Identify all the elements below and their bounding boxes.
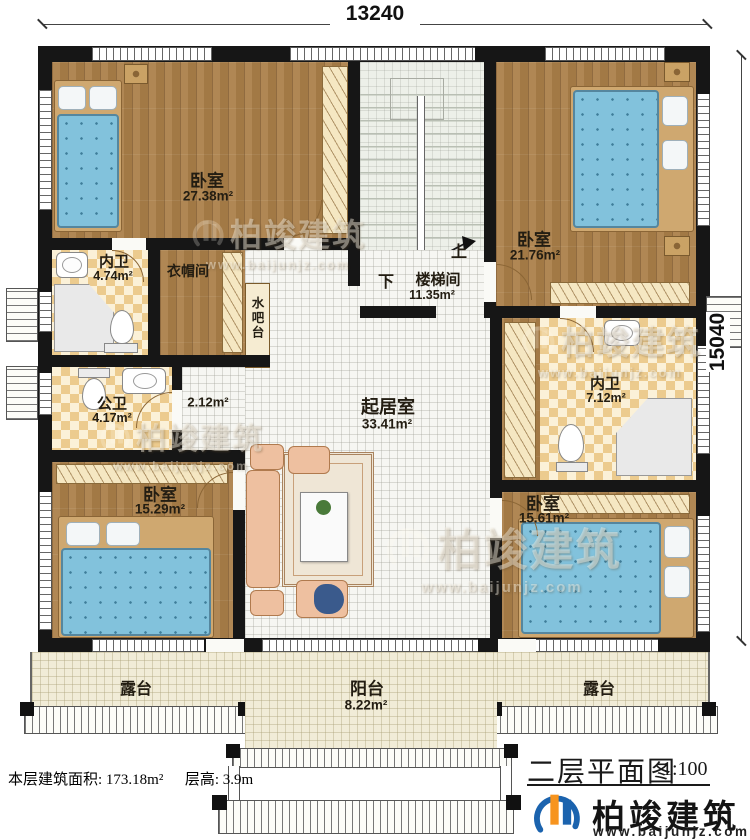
ac-platform bbox=[6, 288, 38, 342]
terrace-door-opening bbox=[206, 639, 244, 652]
wall-segment bbox=[52, 450, 245, 462]
door-opening bbox=[560, 306, 596, 318]
sofa bbox=[246, 470, 280, 588]
brand-logo-icon bbox=[528, 788, 586, 838]
terrace-left-railing bbox=[24, 706, 250, 734]
plant bbox=[316, 500, 331, 515]
bath-right-area: 7.12m² bbox=[586, 391, 626, 405]
ac-platform bbox=[6, 366, 38, 420]
plan-scale: 1:100 bbox=[662, 758, 708, 781]
washbasin bbox=[122, 368, 166, 394]
stairwell-label: 楼梯间 bbox=[415, 269, 460, 290]
nightstand bbox=[664, 62, 690, 82]
window bbox=[290, 47, 475, 61]
bedroom-br-closet bbox=[504, 322, 536, 478]
bath-public-area: 4.17m² bbox=[92, 411, 132, 425]
toilet bbox=[110, 310, 134, 344]
cloakroom-label: 衣帽间 bbox=[167, 261, 209, 281]
window bbox=[532, 639, 658, 652]
door-opening bbox=[484, 262, 496, 302]
hallway-area: 2.12m² bbox=[187, 395, 228, 410]
wall-segment bbox=[496, 306, 696, 318]
window bbox=[39, 492, 52, 630]
window bbox=[697, 94, 710, 226]
wall-segment bbox=[360, 306, 436, 318]
floor-area-text: 本层建筑面积: 173.18m² bbox=[8, 772, 163, 788]
sofa-seat bbox=[288, 446, 330, 474]
basin-bowl bbox=[133, 373, 157, 389]
door-opening bbox=[172, 390, 182, 430]
basin-bowl bbox=[62, 257, 82, 273]
bedroom-tl-wardrobe bbox=[322, 66, 348, 234]
door-opening bbox=[490, 498, 502, 538]
wall-segment bbox=[348, 62, 360, 250]
dimension-top-value: 13240 bbox=[330, 2, 420, 26]
railing-post bbox=[226, 744, 240, 758]
door-opening bbox=[233, 470, 245, 510]
armchair bbox=[250, 590, 284, 616]
bedroom-tl-area: 27.38m² bbox=[183, 189, 233, 204]
balcony-area: 8.22m² bbox=[345, 698, 388, 713]
nightstand bbox=[664, 236, 690, 256]
living-room-label: 起居室 bbox=[361, 393, 415, 419]
washbasin bbox=[56, 252, 88, 278]
window bbox=[92, 639, 204, 652]
basin-bowl bbox=[611, 325, 633, 341]
door-opening bbox=[112, 238, 146, 250]
balcony-railing bbox=[232, 748, 512, 768]
bed-blanket bbox=[57, 114, 119, 228]
balcony-label: 阳台 bbox=[350, 675, 384, 700]
wall-segment bbox=[52, 355, 270, 367]
bed-blanket bbox=[61, 548, 211, 636]
water-bar-label: 水吧台 bbox=[248, 296, 267, 340]
railing-post bbox=[702, 702, 716, 716]
terrace-left-label: 露台 bbox=[120, 675, 152, 699]
window bbox=[545, 47, 665, 61]
wall-segment bbox=[490, 318, 502, 638]
bed-pillow bbox=[664, 566, 690, 598]
floor-height-text: 层高: 3.9m bbox=[185, 772, 253, 788]
title-underline bbox=[527, 784, 710, 786]
nightstand bbox=[124, 64, 148, 84]
toilet-tank bbox=[104, 343, 138, 353]
bedroom-tr-area: 21.76m² bbox=[510, 248, 560, 263]
bath-tl-area: 4.74m² bbox=[93, 269, 133, 283]
bedroom-tr-wardrobe bbox=[550, 282, 690, 304]
railing-post bbox=[212, 795, 227, 810]
washbasin bbox=[604, 320, 640, 346]
bedroom-bl-wardrobe bbox=[56, 464, 228, 484]
bedroom-bl-area: 15.29m² bbox=[135, 502, 185, 517]
living-room-area: 33.41m² bbox=[362, 417, 412, 432]
bed-blanket bbox=[573, 90, 659, 228]
terrace-right-railing bbox=[492, 706, 718, 734]
wall-segment bbox=[348, 250, 360, 286]
window bbox=[39, 90, 52, 210]
throw-blanket bbox=[314, 584, 344, 614]
bed-pillow bbox=[66, 522, 100, 546]
railing-post bbox=[20, 702, 34, 716]
window bbox=[92, 47, 212, 61]
wall-segment bbox=[148, 250, 160, 355]
dimension-line-right bbox=[741, 56, 742, 642]
window bbox=[39, 373, 52, 415]
brand-website: www.baijunjz.com bbox=[593, 824, 750, 839]
balcony-sliding-door bbox=[262, 639, 478, 652]
window bbox=[39, 292, 52, 332]
bedroom-br-area: 15.61m² bbox=[519, 511, 569, 526]
toilet bbox=[558, 424, 584, 462]
toilet-tank bbox=[78, 368, 110, 378]
footer-stats: 本层建筑面积: 173.18m² 层高: 3.9m bbox=[8, 768, 253, 789]
stair-up-label: 上 bbox=[451, 238, 467, 262]
lower-roof-railing bbox=[218, 800, 514, 834]
bed-pillow bbox=[664, 526, 690, 558]
armchair bbox=[250, 444, 284, 470]
window bbox=[697, 516, 710, 632]
door-opening bbox=[284, 238, 322, 250]
floor-plan-canvas: 柏竣建筑 www.baijunjz.com 柏竣建筑 www.baijunjz.… bbox=[0, 0, 750, 840]
railing-post bbox=[506, 795, 521, 810]
stairwell-area: 11.35m² bbox=[409, 288, 455, 302]
cloakroom-wardrobe bbox=[222, 252, 243, 353]
bed-blanket bbox=[521, 522, 661, 634]
railing-post bbox=[504, 744, 518, 758]
bed-pillow bbox=[662, 140, 688, 170]
toilet-tank bbox=[556, 462, 588, 472]
bed-pillow bbox=[58, 86, 86, 110]
dimension-right-value: 15040 bbox=[706, 312, 730, 372]
bed-pillow bbox=[106, 522, 140, 546]
bed-pillow bbox=[662, 96, 688, 126]
stair-down-label: 下 bbox=[378, 268, 394, 292]
bed-pillow bbox=[89, 86, 117, 110]
terrace-right-label: 露台 bbox=[583, 675, 615, 699]
terrace-door-opening bbox=[498, 639, 536, 652]
